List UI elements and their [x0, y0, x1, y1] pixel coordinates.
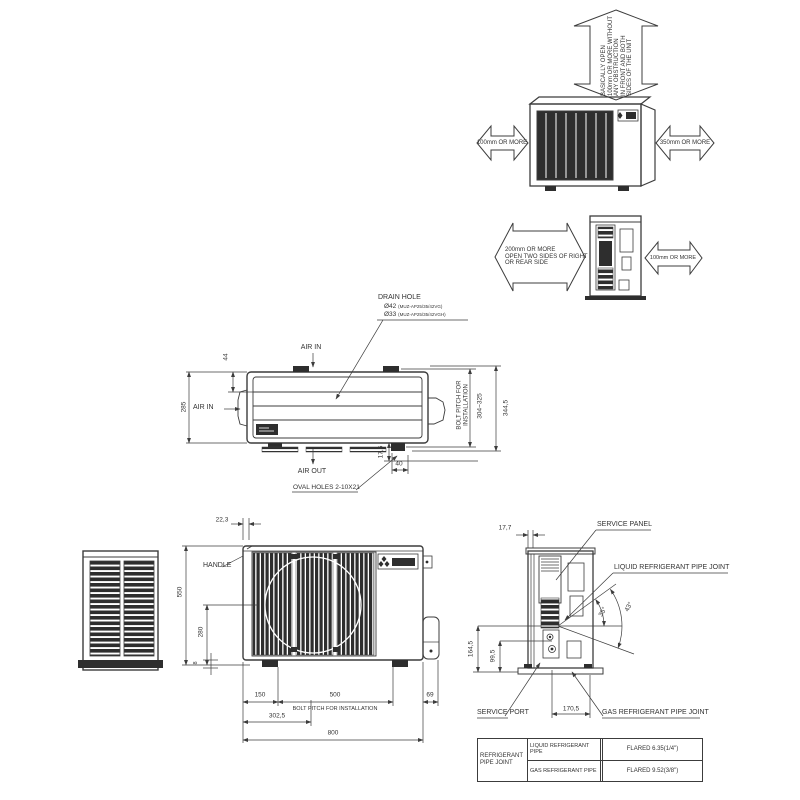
- dim-344-5: 344,5: [503, 400, 510, 416]
- dim-170-5: 170,5: [563, 706, 579, 713]
- fan-grille-col1: [253, 553, 292, 655]
- left-side-view-lines: [78, 551, 163, 670]
- dim-280: 280: [198, 627, 205, 638]
- front-clearance-label: 100mm OR MORE: [650, 255, 696, 261]
- fan-grille-col2: [296, 553, 333, 655]
- rear-clearance-note: 200mm OR MORE OPEN TWO SIDES OF RIGHT OR…: [505, 247, 588, 267]
- table-cell-label: GAS REFRIGERANT PIPE: [528, 761, 603, 782]
- dim-44: 44: [223, 353, 230, 360]
- dim-500: 500: [330, 692, 341, 699]
- oval-holes-label: OVAL HOLES 2-10X21: [293, 484, 360, 491]
- top-view-lines: [238, 366, 445, 452]
- side-handle: [428, 398, 445, 424]
- dimension-drawing-canvas: BASICALLY OPEN 100mm OR MORE WITHOUT ANY…: [0, 0, 800, 800]
- air-in-top-label: AIR IN: [301, 344, 322, 352]
- dim-550: 550: [177, 587, 184, 598]
- dim-17-7: 17,7: [499, 525, 512, 532]
- table-row: LIQUID REFRIGERANT PIPE FLARED 6.35(1/4"…: [528, 739, 702, 761]
- table-row: GAS REFRIGERANT PIPE FLARED 9.52(3/8"): [528, 761, 702, 782]
- table-cell-value: FLARED 6.35(1/4"): [603, 739, 702, 760]
- bolt-pitch-note-front: BOLT PITCH FOR INSTALLATION: [293, 706, 378, 712]
- perspective-grille: [537, 111, 613, 180]
- foot-left: [262, 660, 278, 667]
- drain-hole-dia1: Ø42 (MUZ-AP25/35/42VG): [384, 303, 442, 310]
- liquid-joint-label: LIQUID REFRIGERANT PIPE JOINT: [614, 564, 729, 572]
- pipe-cover: [423, 617, 439, 659]
- refrigerant-joint-table: REFRIGERANT PIPE JOINT LIQUID REFRIGERAN…: [477, 738, 703, 782]
- right-side-view-dimensions: [473, 530, 728, 718]
- dim-285: 285: [181, 402, 188, 413]
- dim-8: 8: [193, 661, 199, 664]
- clearance-view-lines: [477, 10, 714, 191]
- dim-304-325: 304~325: [477, 393, 484, 419]
- service-panel-shape: [539, 556, 561, 603]
- dim-22-3: 22,3: [216, 517, 229, 524]
- front-view-lines: [243, 546, 439, 667]
- drain-hole-label: DRAIN HOLE: [378, 294, 421, 302]
- dim-164-5: 164,5: [468, 641, 475, 657]
- drain-hole-dia2: Ø33 (MUZ-AP25/35/42VGH): [384, 311, 446, 318]
- right-side-view-lines: [518, 548, 603, 674]
- dim-302-5: 302,5: [269, 713, 285, 720]
- table-cell-label: LIQUID REFRIGERANT PIPE: [528, 739, 603, 760]
- air-in-left-label: AIR IN: [193, 404, 214, 412]
- bolt-pitch-note-top: BOLT PITCH FOR INSTALLATION: [457, 380, 470, 429]
- drawing-linework: [0, 0, 800, 800]
- dim-17-5: 17,5: [378, 446, 385, 459]
- air-out-label: AIR OUT: [298, 468, 326, 476]
- dim-150: 150: [255, 692, 266, 699]
- dim-99-5: 99,5: [490, 650, 497, 663]
- dim-40: 40: [395, 461, 402, 468]
- right-clearance-label: 350mm OR MORE: [660, 140, 710, 147]
- louver-grille-left: [90, 561, 120, 656]
- service-panel-label: SERVICE PANEL: [597, 521, 652, 529]
- gas-joint-label: GAS REFRIGERANT PIPE JOINT: [602, 709, 709, 717]
- three-diamond-icon: [382, 556, 387, 562]
- fan-grille-col3: [337, 553, 374, 655]
- air-inlet-bulge: [238, 390, 247, 426]
- dim-69: 69: [426, 692, 433, 699]
- dim-800: 800: [328, 730, 339, 737]
- left-clearance-label: 100mm OR MORE: [477, 140, 527, 147]
- louver-grille-right: [124, 561, 154, 656]
- rating-label: [256, 424, 278, 435]
- base-plate: [518, 668, 603, 674]
- table-cell-value: FLARED 9.52(3/8"): [603, 761, 702, 782]
- service-port-label: SERVICE PORT: [477, 709, 529, 717]
- oval-hole-tab: [391, 443, 405, 451]
- table-header-cell: REFRIGERANT PIPE JOINT: [478, 739, 528, 781]
- handle-label: HANDLE: [203, 562, 231, 570]
- vertical-clearance-note: BASICALLY OPEN 100mm OR MORE WITHOUT ANY…: [601, 16, 634, 96]
- foot-right: [392, 660, 408, 667]
